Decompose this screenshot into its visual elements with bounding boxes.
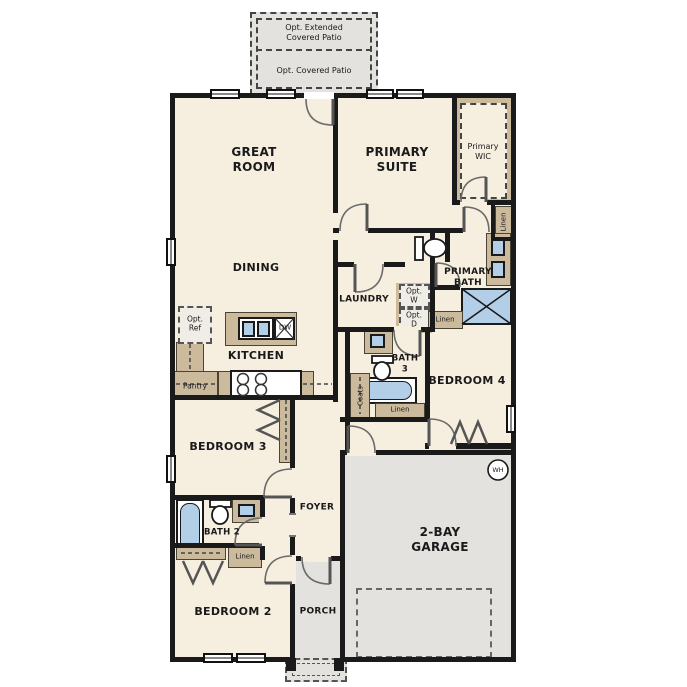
label-bath2: BATH 2 bbox=[204, 528, 240, 539]
kitchen-sink-basin-left bbox=[242, 321, 255, 337]
gap-patio-door bbox=[304, 92, 334, 99]
wall-exterior-left bbox=[170, 93, 175, 662]
window-greatroom-1 bbox=[210, 89, 240, 99]
wall-exterior-right bbox=[511, 93, 516, 662]
patio-divider bbox=[256, 49, 372, 51]
bath3-sink bbox=[370, 334, 385, 348]
label-porch: PORCH bbox=[300, 606, 337, 617]
window-dining bbox=[166, 238, 176, 266]
label-laundry: LAUNDRY bbox=[339, 294, 389, 305]
window-suite-2 bbox=[396, 89, 424, 99]
gap-suite-door bbox=[339, 227, 368, 234]
wall-greatroom-suite bbox=[333, 93, 338, 213]
window-greatroom-2 bbox=[266, 89, 296, 99]
gap-front-door bbox=[301, 555, 331, 562]
window-bedroom4 bbox=[506, 405, 516, 433]
wall-bath3-bottom bbox=[340, 417, 430, 422]
label-opt-ref: Opt. Ref bbox=[187, 315, 203, 334]
gap-bedroom3-door bbox=[289, 468, 296, 498]
label-primary-wic: Primary WIC bbox=[468, 142, 499, 162]
wall-bath3-left bbox=[345, 327, 350, 452]
label-pantry: Pantry bbox=[183, 381, 207, 390]
label-kitchen: KITCHEN bbox=[228, 349, 284, 363]
gap-foyer-cased-opening bbox=[289, 513, 296, 537]
label-coats: Coats bbox=[357, 386, 366, 406]
label-linen-bath2: Linen bbox=[235, 553, 254, 562]
window-bedroom3 bbox=[166, 455, 176, 483]
label-opt-extended-patio: Opt. Extended Covered Patio bbox=[285, 23, 343, 43]
wall-garage-left bbox=[340, 450, 345, 662]
floorplan: Opt. Extended Covered Patio Opt. Covered… bbox=[0, 0, 687, 687]
label-dining: DINING bbox=[233, 261, 280, 275]
label-linen-bath-hall: Linen bbox=[435, 316, 454, 325]
wall-linen-right-bottom bbox=[491, 237, 516, 241]
label-opt-covered-patio: Opt. Covered Patio bbox=[276, 66, 351, 76]
window-bedroom2-2 bbox=[236, 653, 266, 663]
wall-kitchen-bottom bbox=[170, 395, 338, 400]
wall-linen-right-side bbox=[491, 205, 495, 240]
wall-laundry-right bbox=[430, 232, 435, 332]
label-bedroom4: BEDROOM 4 bbox=[428, 374, 505, 388]
label-garage: 2-BAY GARAGE bbox=[411, 525, 469, 555]
label-primary-bath: PRIMARY BATH bbox=[444, 267, 492, 290]
gap-bath2-door bbox=[259, 517, 266, 546]
gap-laundry-door bbox=[354, 261, 384, 268]
wall-bottom-garage bbox=[340, 657, 516, 662]
gap-wic-door bbox=[460, 199, 487, 206]
label-opt-dryer: Opt. D bbox=[406, 311, 422, 330]
label-great-room: GREAT ROOM bbox=[231, 145, 276, 175]
gap-bedroom2-door bbox=[289, 555, 296, 584]
ref-side-cabinet bbox=[176, 342, 204, 372]
primary-sink-1 bbox=[491, 239, 505, 256]
label-bath3: BATH 3 bbox=[392, 353, 419, 374]
wall-bath2-bottom bbox=[170, 543, 262, 548]
label-opt-washer: Opt. W bbox=[406, 287, 422, 306]
window-suite-1 bbox=[366, 89, 394, 99]
wall-toilet-nook bbox=[445, 232, 450, 262]
primary-sink-2 bbox=[491, 261, 505, 278]
wall-bed3-bath2 bbox=[170, 495, 265, 500]
window-bedroom2-1 bbox=[203, 653, 233, 663]
label-bedroom2: BEDROOM 2 bbox=[194, 605, 271, 619]
gap-bedroom4-door bbox=[429, 442, 456, 450]
label-dishwasher: DW bbox=[279, 324, 291, 333]
wall-wic-left bbox=[452, 93, 457, 203]
label-linen-wic: Linen bbox=[500, 212, 509, 231]
label-foyer: FOYER bbox=[300, 502, 335, 513]
garage-door-outline bbox=[356, 588, 492, 658]
label-primary-suite: PRIMARY SUITE bbox=[365, 145, 428, 175]
stove bbox=[230, 370, 302, 397]
label-bedroom3: BEDROOM 3 bbox=[189, 440, 266, 454]
primary-shower bbox=[461, 288, 512, 325]
bedroom2-closet bbox=[176, 546, 226, 560]
label-water-heater: WH bbox=[492, 466, 503, 474]
bath2-sink bbox=[238, 504, 255, 517]
kitchen-sink-basin-right bbox=[257, 321, 270, 337]
label-linen-bath3: Linen bbox=[390, 406, 409, 415]
gap-garage-door-entry bbox=[347, 449, 376, 456]
porch-steps-inner bbox=[292, 663, 340, 676]
